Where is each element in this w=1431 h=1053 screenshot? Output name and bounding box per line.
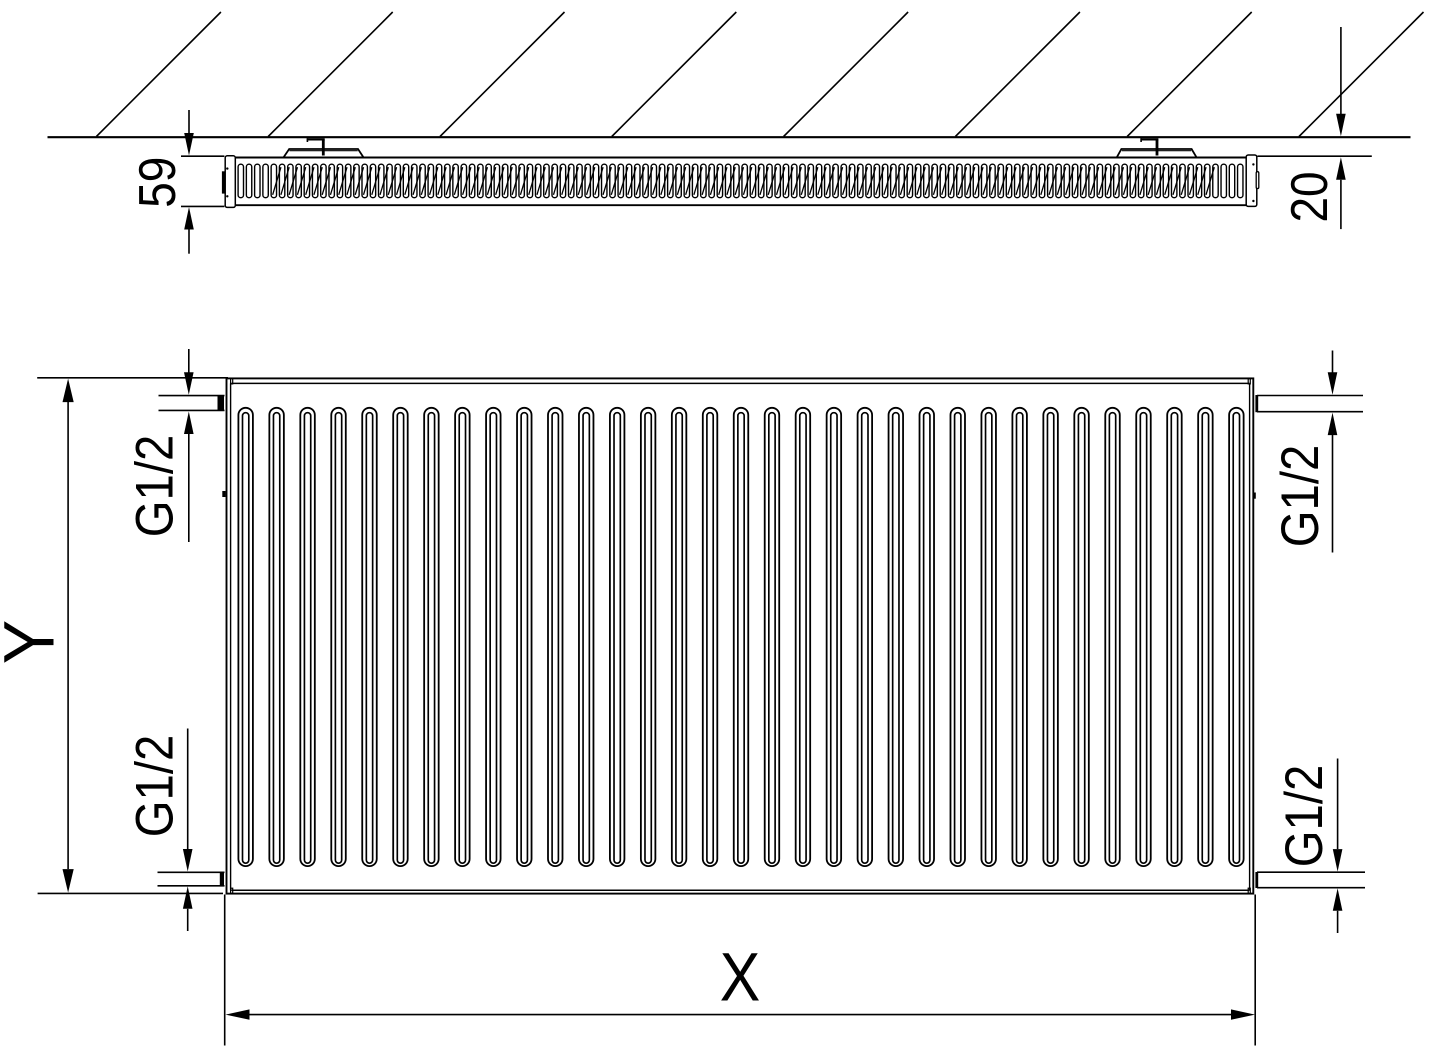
- svg-text:Y: Y: [0, 620, 69, 665]
- svg-text:G1/2: G1/2: [1271, 445, 1330, 548]
- svg-text:G1/2: G1/2: [1275, 765, 1334, 868]
- svg-text:59: 59: [129, 157, 187, 208]
- svg-text:X: X: [720, 939, 761, 1016]
- svg-text:G1/2: G1/2: [126, 735, 185, 838]
- svg-text:G1/2: G1/2: [126, 435, 185, 538]
- svg-text:20: 20: [1281, 172, 1339, 223]
